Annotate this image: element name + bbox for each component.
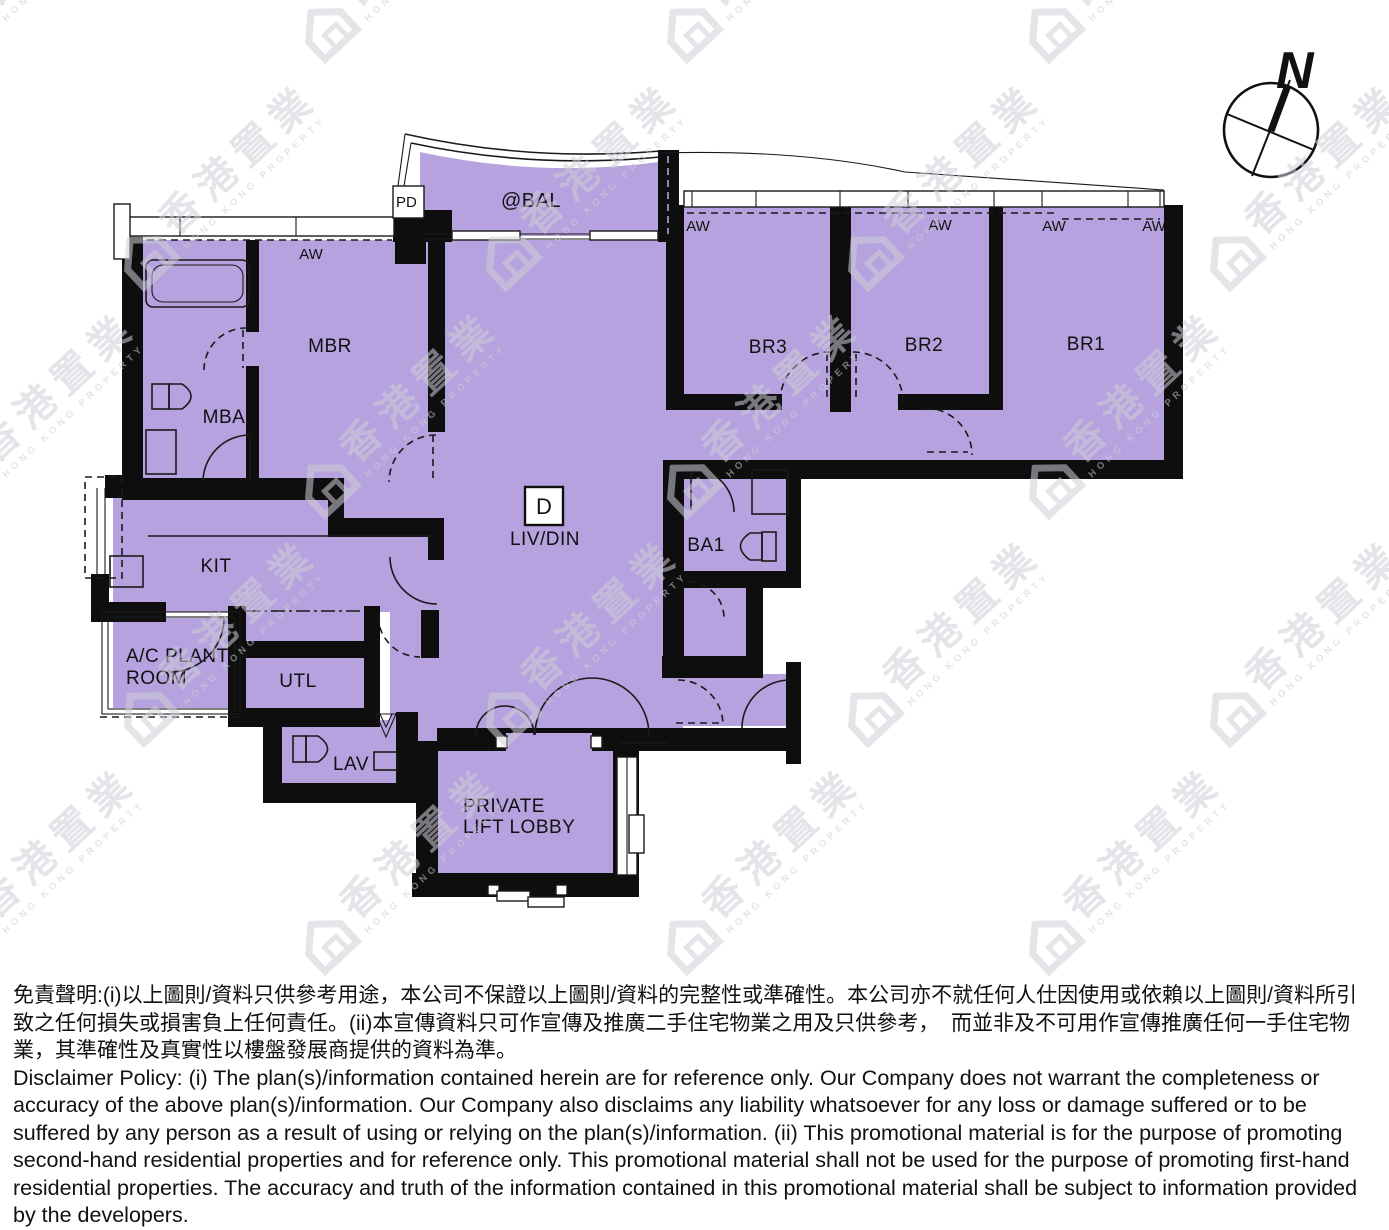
- room-label-utl: UTL: [279, 671, 316, 692]
- room-vestibule: [637, 674, 787, 726]
- disclaimer-chinese: 免責聲明:(i)以上圖則/資料只供參考用途，本公司不保證以上圖則/資料的完整性或…: [13, 982, 1376, 1065]
- lobby-sill: [497, 891, 530, 901]
- window-label-aw: AW: [928, 217, 952, 234]
- room-label-lav: LAV: [333, 754, 369, 775]
- window-label-aw: AW: [299, 246, 323, 263]
- room-label-br1: BR1: [1067, 334, 1105, 355]
- room-label-ac-2: ROOM: [126, 668, 187, 689]
- room-label-mbr: MBR: [308, 336, 352, 357]
- room-label-balcony: @BAL: [501, 190, 561, 212]
- door-jamb: [591, 736, 602, 748]
- unit-badge: D: [525, 487, 563, 525]
- room-label-lobby-2: LIFT LOBBY: [463, 817, 575, 838]
- room-utility: [228, 608, 368, 714]
- window-label-aw: AW: [1042, 218, 1066, 235]
- room-label-mba: MBA: [203, 407, 246, 428]
- room-ba1-annex: [681, 586, 748, 660]
- room-label-lobby-1: PRIVATE: [463, 796, 545, 817]
- room-kitchen: [113, 496, 440, 612]
- room-label-ac-1: A/C PLANT: [126, 646, 229, 667]
- room-label-ba1: BA1: [687, 535, 724, 556]
- door-jamb: [556, 885, 567, 895]
- room-label-br2: BR2: [905, 335, 943, 356]
- balcony-door-sill: [452, 231, 520, 240]
- door-jamb: [496, 736, 507, 748]
- window-label-aw: AW: [1142, 218, 1166, 235]
- room-ba1: [681, 465, 790, 575]
- lobby-sill: [528, 897, 564, 907]
- awning-curve: [661, 152, 1164, 190]
- lobby-window-ledge: [629, 815, 644, 853]
- bay-window-mbr: [128, 217, 394, 236]
- lobby-door-opening: [506, 733, 592, 751]
- unit-letter: D: [536, 494, 552, 519]
- balcony-parapet-outer: [405, 134, 660, 154]
- room-mbr-area: [140, 240, 432, 487]
- disclaimer-english: Disclaimer Policy: (i) The plan(s)/infor…: [13, 1065, 1376, 1230]
- window-fin: [114, 204, 130, 259]
- floor-plan: MBR MBA BR3 BR2 BR1 KIT UTL LAV BA1 LIV/…: [0, 0, 1389, 980]
- room-label-kit: KIT: [200, 556, 231, 577]
- compass-icon: N: [1224, 42, 1318, 177]
- floorplan-svg: MBR MBA BR3 BR2 BR1 KIT UTL LAV BA1 LIV/…: [0, 0, 1389, 980]
- compass-north-label: N: [1276, 42, 1315, 100]
- room-label-br3: BR3: [749, 337, 787, 358]
- room-label-livdin: LIV/DIN: [510, 529, 580, 550]
- disclaimer-section: 免責聲明:(i)以上圖則/資料只供參考用途，本公司不保證以上圖則/資料的完整性或…: [0, 982, 1389, 1230]
- balcony-door-sill: [590, 231, 658, 240]
- window-label-aw: AW: [686, 218, 710, 235]
- label-pd: PD: [396, 194, 417, 211]
